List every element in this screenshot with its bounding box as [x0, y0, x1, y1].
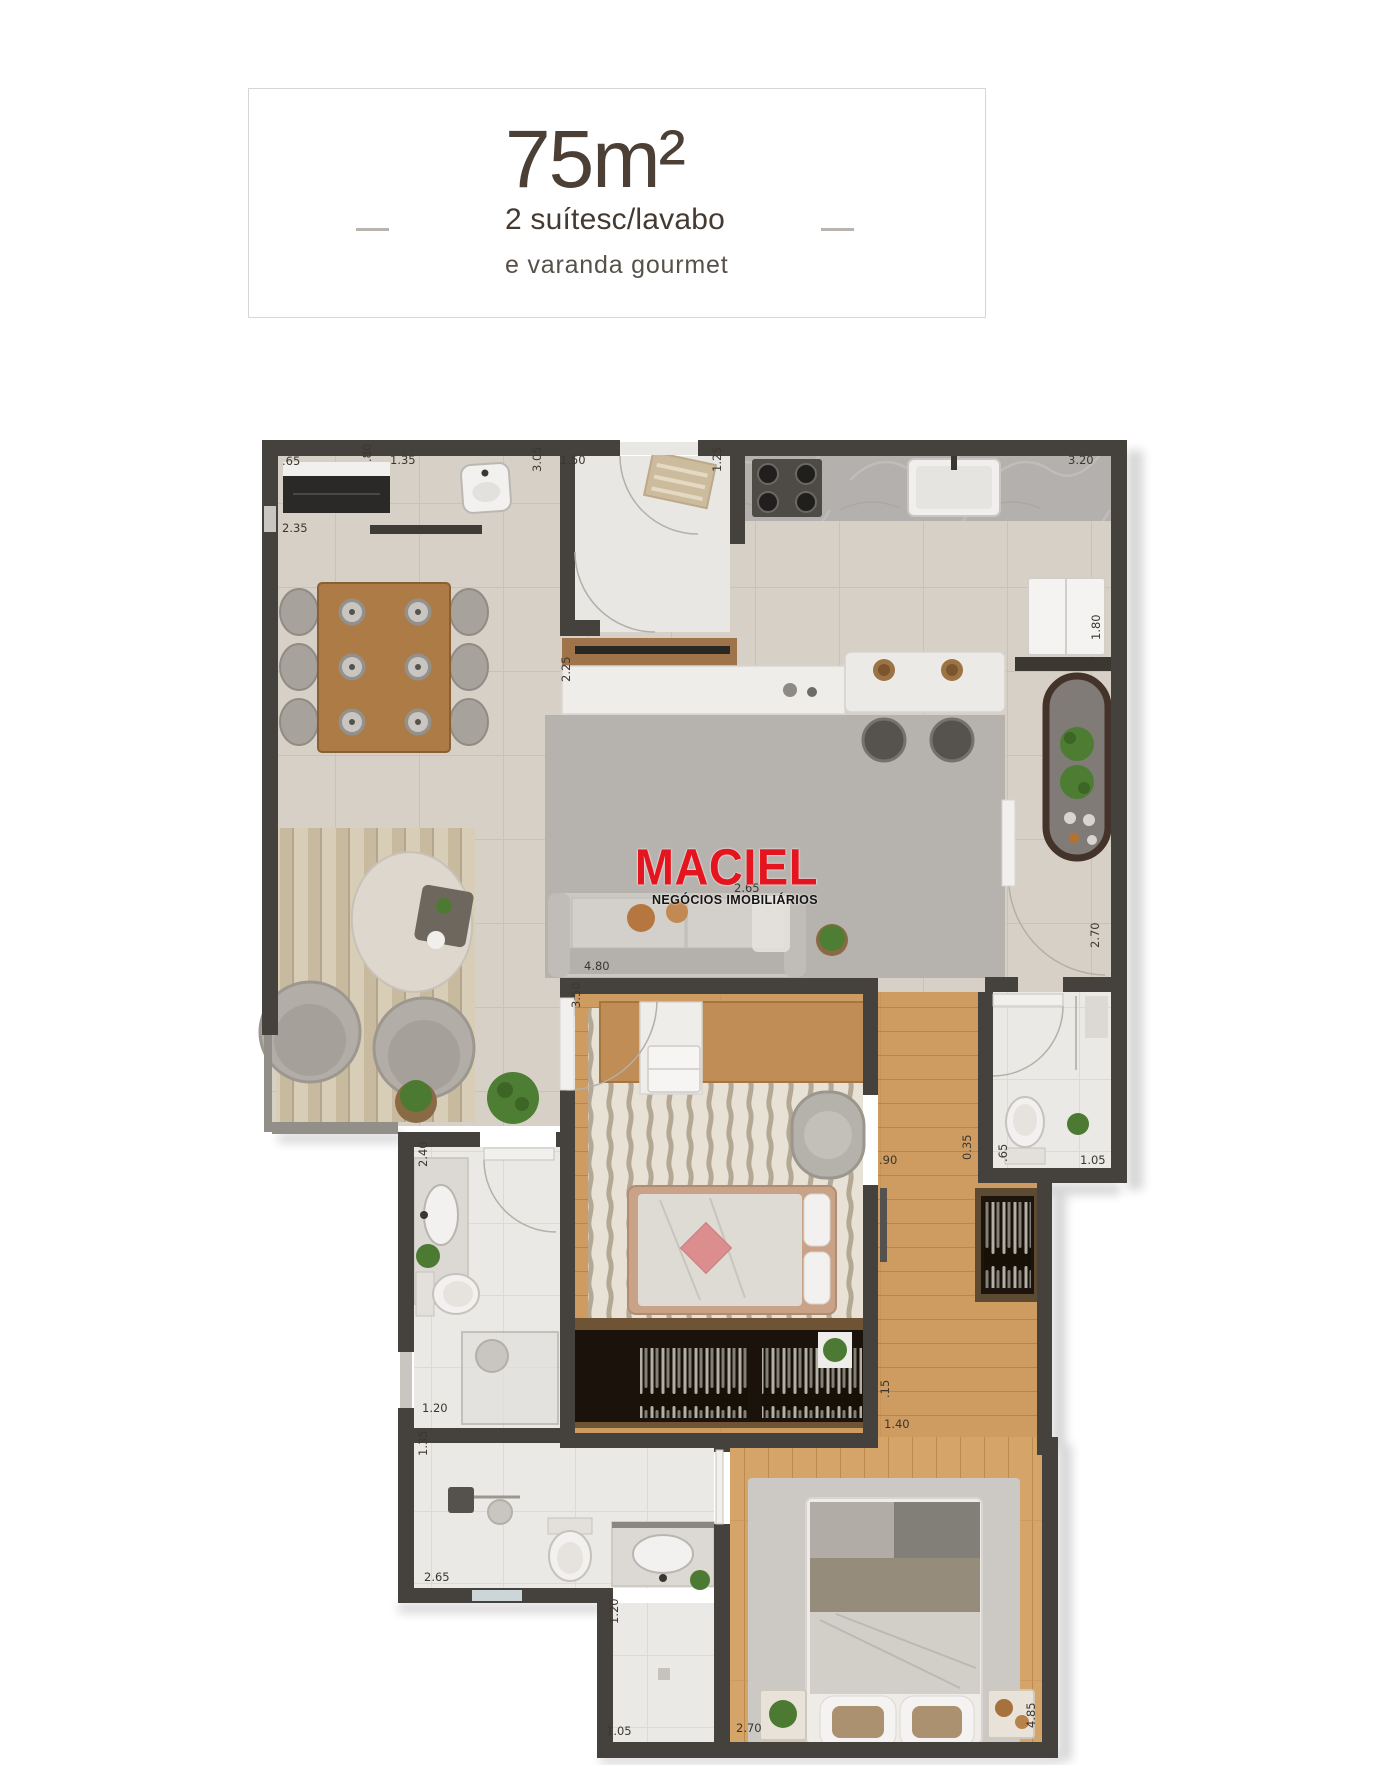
dimension-label: 2.65	[424, 1570, 450, 1584]
cooktop-icon	[752, 459, 822, 517]
plant-icon	[1067, 1113, 1089, 1135]
dimension-label: 2.40	[416, 1141, 430, 1167]
dimension-label: 1.25	[710, 446, 724, 472]
dimension-label: 3.05	[530, 446, 544, 472]
dimension-label: 1.05	[1080, 1153, 1106, 1167]
dimension-label: 1.40	[884, 1417, 910, 1431]
closet-suite1	[565, 1318, 877, 1428]
sideboard-icon	[283, 462, 390, 513]
counter-shelf	[1015, 657, 1111, 671]
wall-shelf	[370, 525, 482, 534]
brand-name: MACIEL	[586, 843, 818, 891]
dimension-label: 2.70	[1088, 922, 1102, 948]
dimension-label: 0.35	[960, 1134, 974, 1160]
dimension-label: 1.80	[1089, 614, 1103, 640]
dimension-label: 4.80	[584, 959, 610, 973]
dimension-label: 1.20	[422, 1401, 448, 1415]
dimension-label: 1.35	[416, 1430, 430, 1456]
dimension-label: 2.25	[559, 656, 573, 682]
varanda-plant-table	[1046, 676, 1108, 858]
dimension-label: 3.50	[569, 982, 583, 1008]
page: 75m² 2 suítesc/lavabo e varanda gourmet	[0, 0, 1400, 1765]
plant-icon	[690, 1570, 710, 1590]
desk-suite1	[600, 1002, 875, 1094]
dimension-label: 1.05	[606, 1724, 632, 1738]
dimension-label: .90	[879, 1153, 897, 1167]
plant-icon	[416, 1244, 440, 1268]
shower-icon	[448, 1487, 474, 1513]
plant-icon	[769, 1700, 797, 1728]
brand-logo: MACIEL NEGÓCIOS IMOBILIÁRIOS	[586, 845, 818, 907]
shower-icon	[462, 1332, 558, 1424]
dimension-label: .65	[996, 1144, 1010, 1162]
dimension-label: 2.35	[282, 521, 308, 535]
open-door-leaf	[880, 1188, 887, 1262]
dining-table	[318, 583, 450, 752]
shower-drain	[658, 1668, 670, 1680]
sink-icon	[424, 1185, 458, 1245]
dimension-label: 1.50	[560, 453, 586, 467]
bed-suite2	[806, 1498, 982, 1748]
kitchen-island	[845, 652, 1005, 712]
dimension-label: 2.70	[736, 1721, 762, 1735]
bed-suite1	[628, 1186, 836, 1314]
dimension-label: .15	[878, 1380, 892, 1398]
nightstand-left	[760, 1690, 806, 1740]
dimension-label: 4.85	[1024, 1702, 1038, 1728]
dimension-label: 1.35	[390, 453, 416, 467]
dimension-label: 1.20	[607, 1598, 621, 1624]
dimension-label: .80	[360, 444, 374, 462]
dimension-label: .65	[282, 454, 300, 468]
lavabo-sink-icon	[460, 462, 511, 513]
sofa-side-plant-icon	[816, 924, 848, 956]
sink-icon	[633, 1535, 693, 1573]
dimension-label: 3.20	[1068, 453, 1094, 467]
hallway-closet	[975, 1188, 1040, 1302]
desk-chair	[792, 1092, 864, 1178]
